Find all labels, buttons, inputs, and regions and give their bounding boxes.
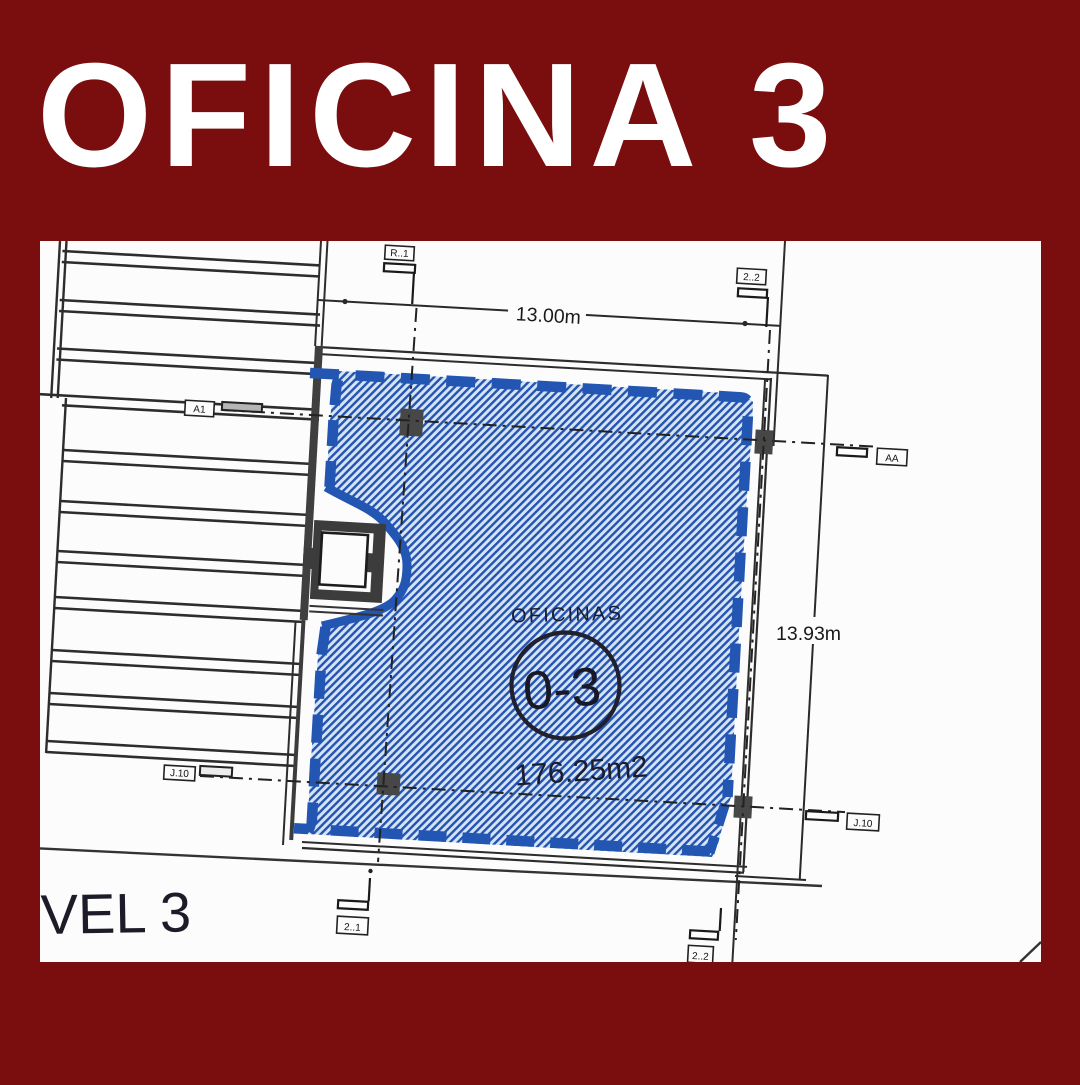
svg-text:0-3: 0-3: [521, 656, 603, 721]
svg-text:OFICINA 3: OFICINA 3: [37, 33, 840, 198]
svg-text:J.10: J.10: [853, 818, 873, 830]
svg-text:13.93m: 13.93m: [776, 623, 841, 645]
svg-text:OFICINAS: OFICINAS: [511, 603, 624, 628]
svg-text:A1: A1: [193, 404, 206, 416]
svg-text:2..2: 2..2: [692, 951, 710, 963]
svg-text:R..1: R..1: [390, 248, 409, 260]
svg-text:2..2: 2..2: [743, 272, 761, 284]
svg-text:J.10: J.10: [170, 768, 190, 780]
svg-text:VEL 3: VEL 3: [40, 880, 192, 946]
svg-text:2..1: 2..1: [344, 922, 362, 934]
svg-text:13.00m: 13.00m: [515, 303, 581, 329]
svg-text:AA: AA: [885, 453, 899, 465]
